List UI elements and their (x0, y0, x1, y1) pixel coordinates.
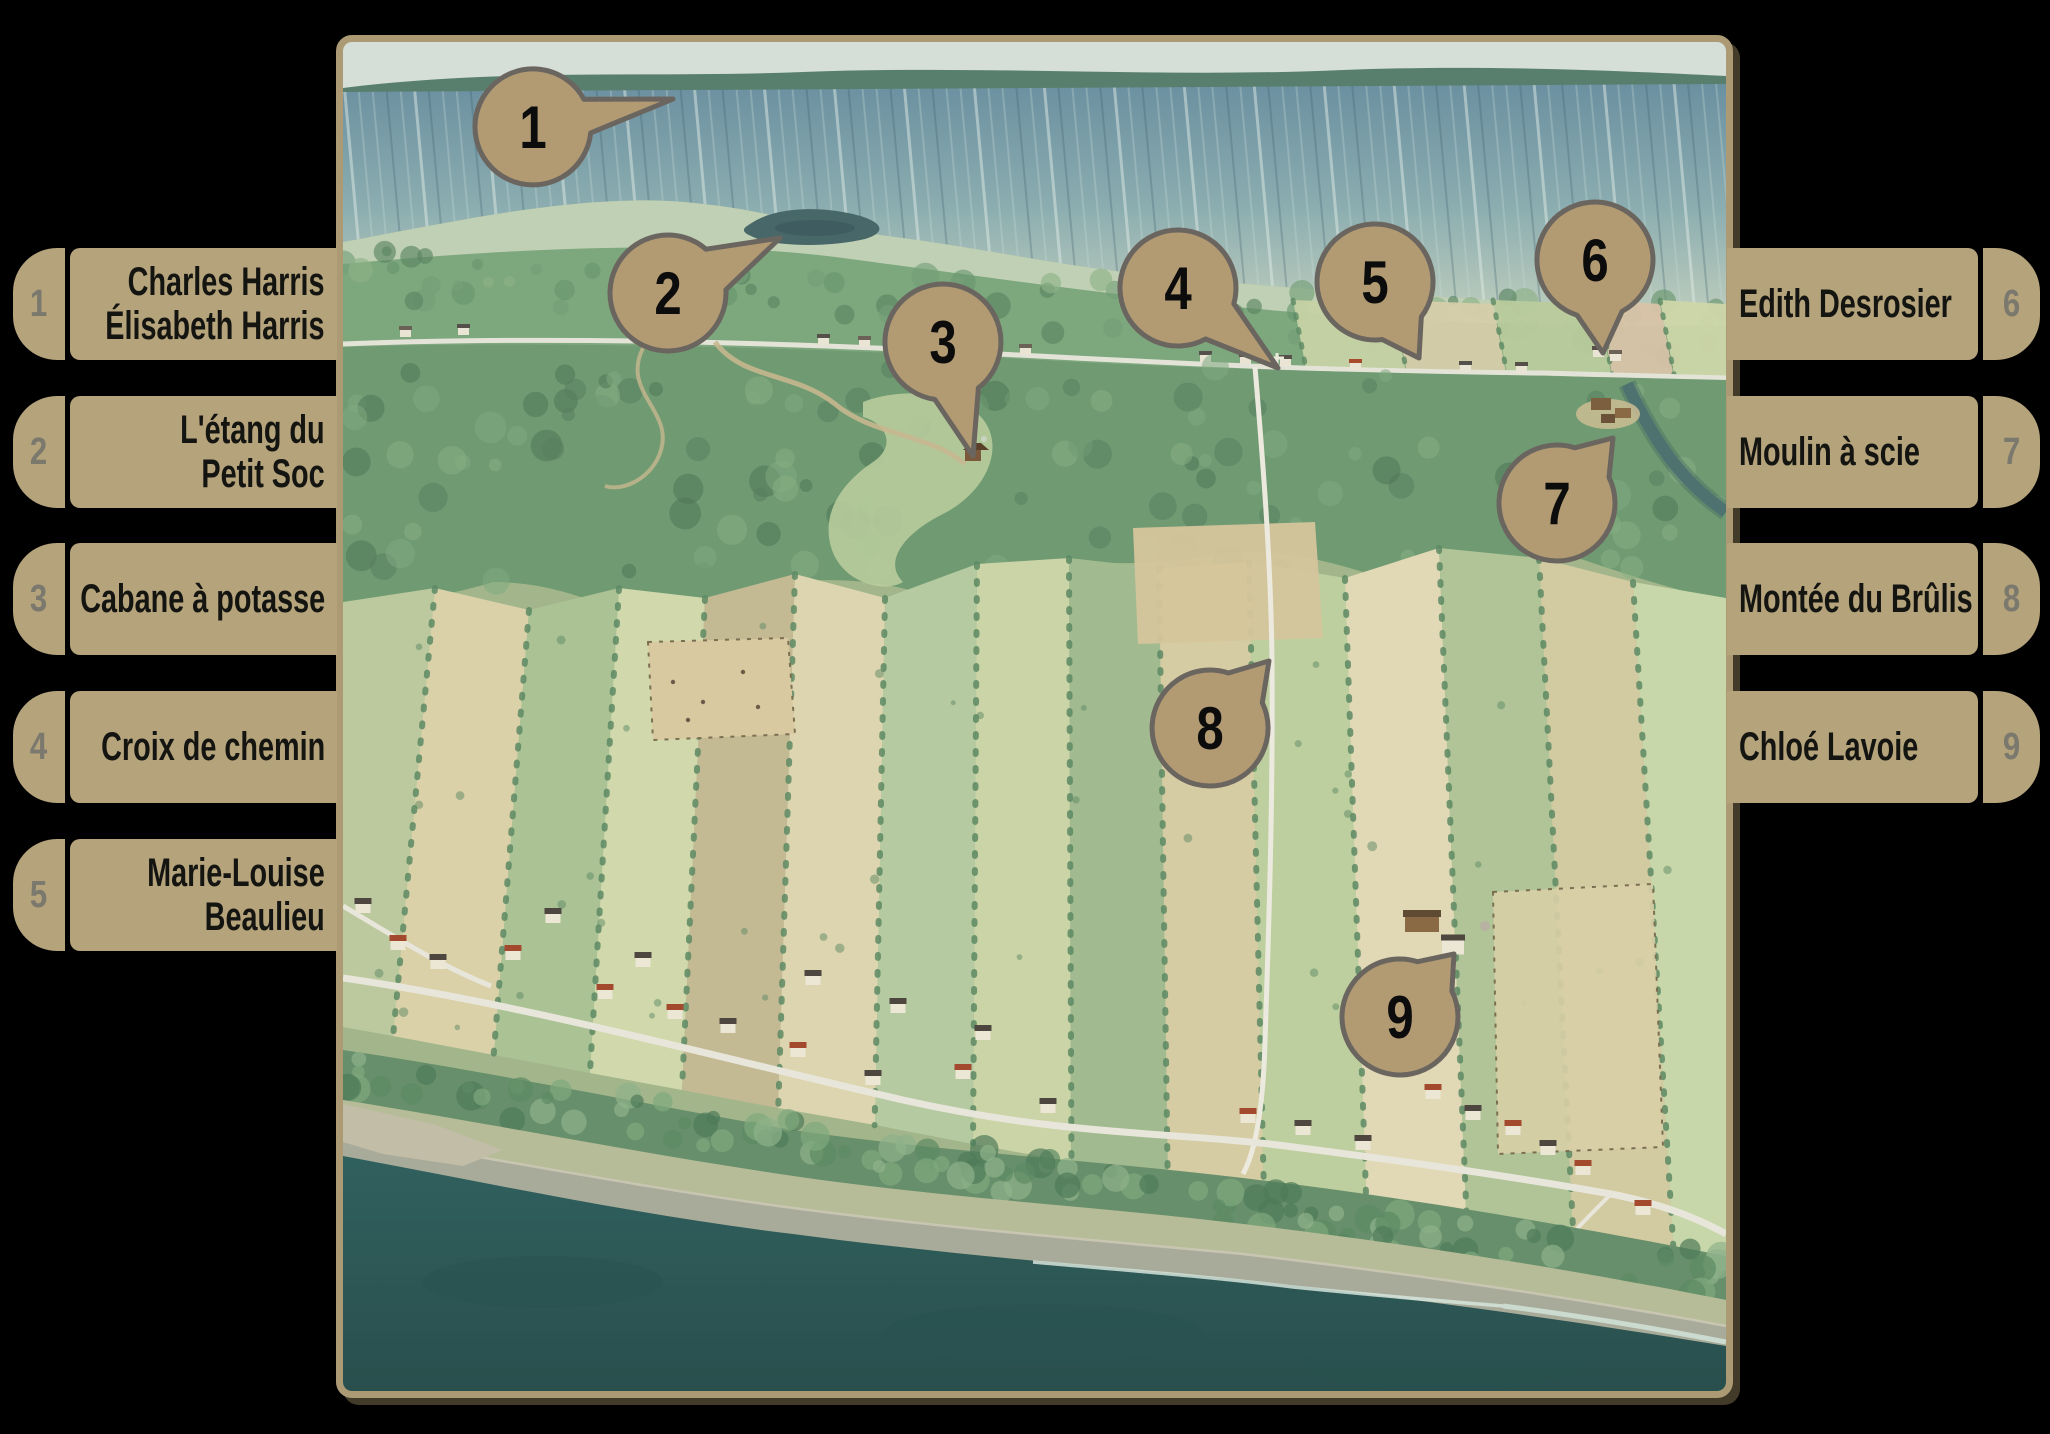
legend-number-tab-3: 3 (13, 543, 65, 655)
legend-label-1-line2: Élisabeth Harris (106, 304, 325, 348)
legend-number-9: 9 (2003, 726, 2020, 769)
legend-label-9-line1: Chloé Lavoie (1739, 725, 1918, 769)
legend-label-2-line1: L'étang du (181, 408, 325, 452)
legend-label-7: Moulin à scie (1727, 396, 1978, 508)
map-marker-number-8: 8 (1196, 694, 1223, 762)
legend-number-7: 7 (2003, 431, 2020, 474)
legend-item-1[interactable]: 1 Charles HarrisÉlisabeth Harris (13, 248, 337, 360)
legend-item-9[interactable]: Chloé Lavoie 9 (1727, 691, 2040, 803)
map-marker-number-4: 4 (1164, 254, 1192, 322)
legend-number-5: 5 (30, 874, 47, 917)
map-marker-number-5: 5 (1361, 248, 1388, 316)
legend-label-5-line2: Beaulieu (147, 895, 325, 939)
map-marker-number-6: 6 (1581, 226, 1608, 294)
legend-label-6-line1: Edith Desrosier (1739, 282, 1952, 326)
legend-item-3[interactable]: 3 Cabane à potasse (13, 543, 337, 655)
legend-label-9: Chloé Lavoie (1727, 691, 1978, 803)
legend-label-4: Croix de chemin (70, 691, 337, 803)
legend-label-1-line1: Charles Harris (106, 260, 325, 304)
legend-item-6[interactable]: Edith Desrosier 6 (1727, 248, 2040, 360)
legend-number-tab-5: 5 (13, 839, 65, 951)
legend-number-2: 2 (30, 431, 47, 474)
map-marker-number-9: 9 (1386, 983, 1413, 1051)
legend-label-3: Cabane à potasse (70, 543, 337, 655)
map-marker-number-7: 7 (1543, 469, 1570, 537)
legend-number-3: 3 (30, 578, 47, 621)
legend-number-tab-7: 7 (1983, 396, 2040, 508)
map-marker-number-3: 3 (929, 308, 956, 376)
map-marker-9[interactable]: 9 (1342, 954, 1458, 1075)
legend-label-8: Montée du Brûlis (1727, 543, 1978, 655)
legend-label-5: Marie-LouiseBeaulieu (70, 839, 337, 951)
legend-number-tab-4: 4 (13, 691, 65, 803)
legend-label-7-line1: Moulin à scie (1739, 430, 1920, 474)
legend-number-tab-9: 9 (1983, 691, 2040, 803)
legend-label-2-line2: Petit Soc (181, 452, 325, 496)
legend-number-8: 8 (2003, 578, 2020, 621)
legend-number-1: 1 (30, 283, 47, 326)
legend-label-8-line1: Montée du Brûlis (1739, 577, 1973, 621)
legend-label-5-line1: Marie-Louise (147, 851, 325, 895)
legend-number-4: 4 (30, 726, 47, 769)
legend-item-2[interactable]: 2 L'étang duPetit Soc (13, 396, 337, 508)
legend-label-4-line1: Croix de chemin (101, 725, 325, 769)
legend-number-tab-8: 8 (1983, 543, 2040, 655)
legend-item-7[interactable]: Moulin à scie 7 (1727, 396, 2040, 508)
legend-label-2: L'étang duPetit Soc (70, 396, 337, 508)
legend-item-8[interactable]: Montée du Brûlis 8 (1727, 543, 2040, 655)
legend-item-5[interactable]: 5 Marie-LouiseBeaulieu (13, 839, 337, 951)
legend-item-4[interactable]: 4 Croix de chemin (13, 691, 337, 803)
map-panel: 123456789 (336, 35, 1733, 1398)
legend-number-tab-1: 1 (13, 248, 65, 360)
map-artwork: 123456789 (343, 42, 1726, 1391)
map-marker-number-1: 1 (519, 93, 546, 161)
page: 123456789 1 Charles HarrisÉlisabeth Harr… (0, 0, 2050, 1434)
legend-number-tab-2: 2 (13, 396, 65, 508)
legend-label-6: Edith Desrosier (1727, 248, 1978, 360)
legend-label-3-line1: Cabane à potasse (80, 577, 325, 621)
legend-number-tab-6: 6 (1983, 248, 2040, 360)
legend-number-6: 6 (2003, 283, 2020, 326)
map-marker-number-2: 2 (654, 259, 681, 327)
legend-label-1: Charles HarrisÉlisabeth Harris (70, 248, 337, 360)
